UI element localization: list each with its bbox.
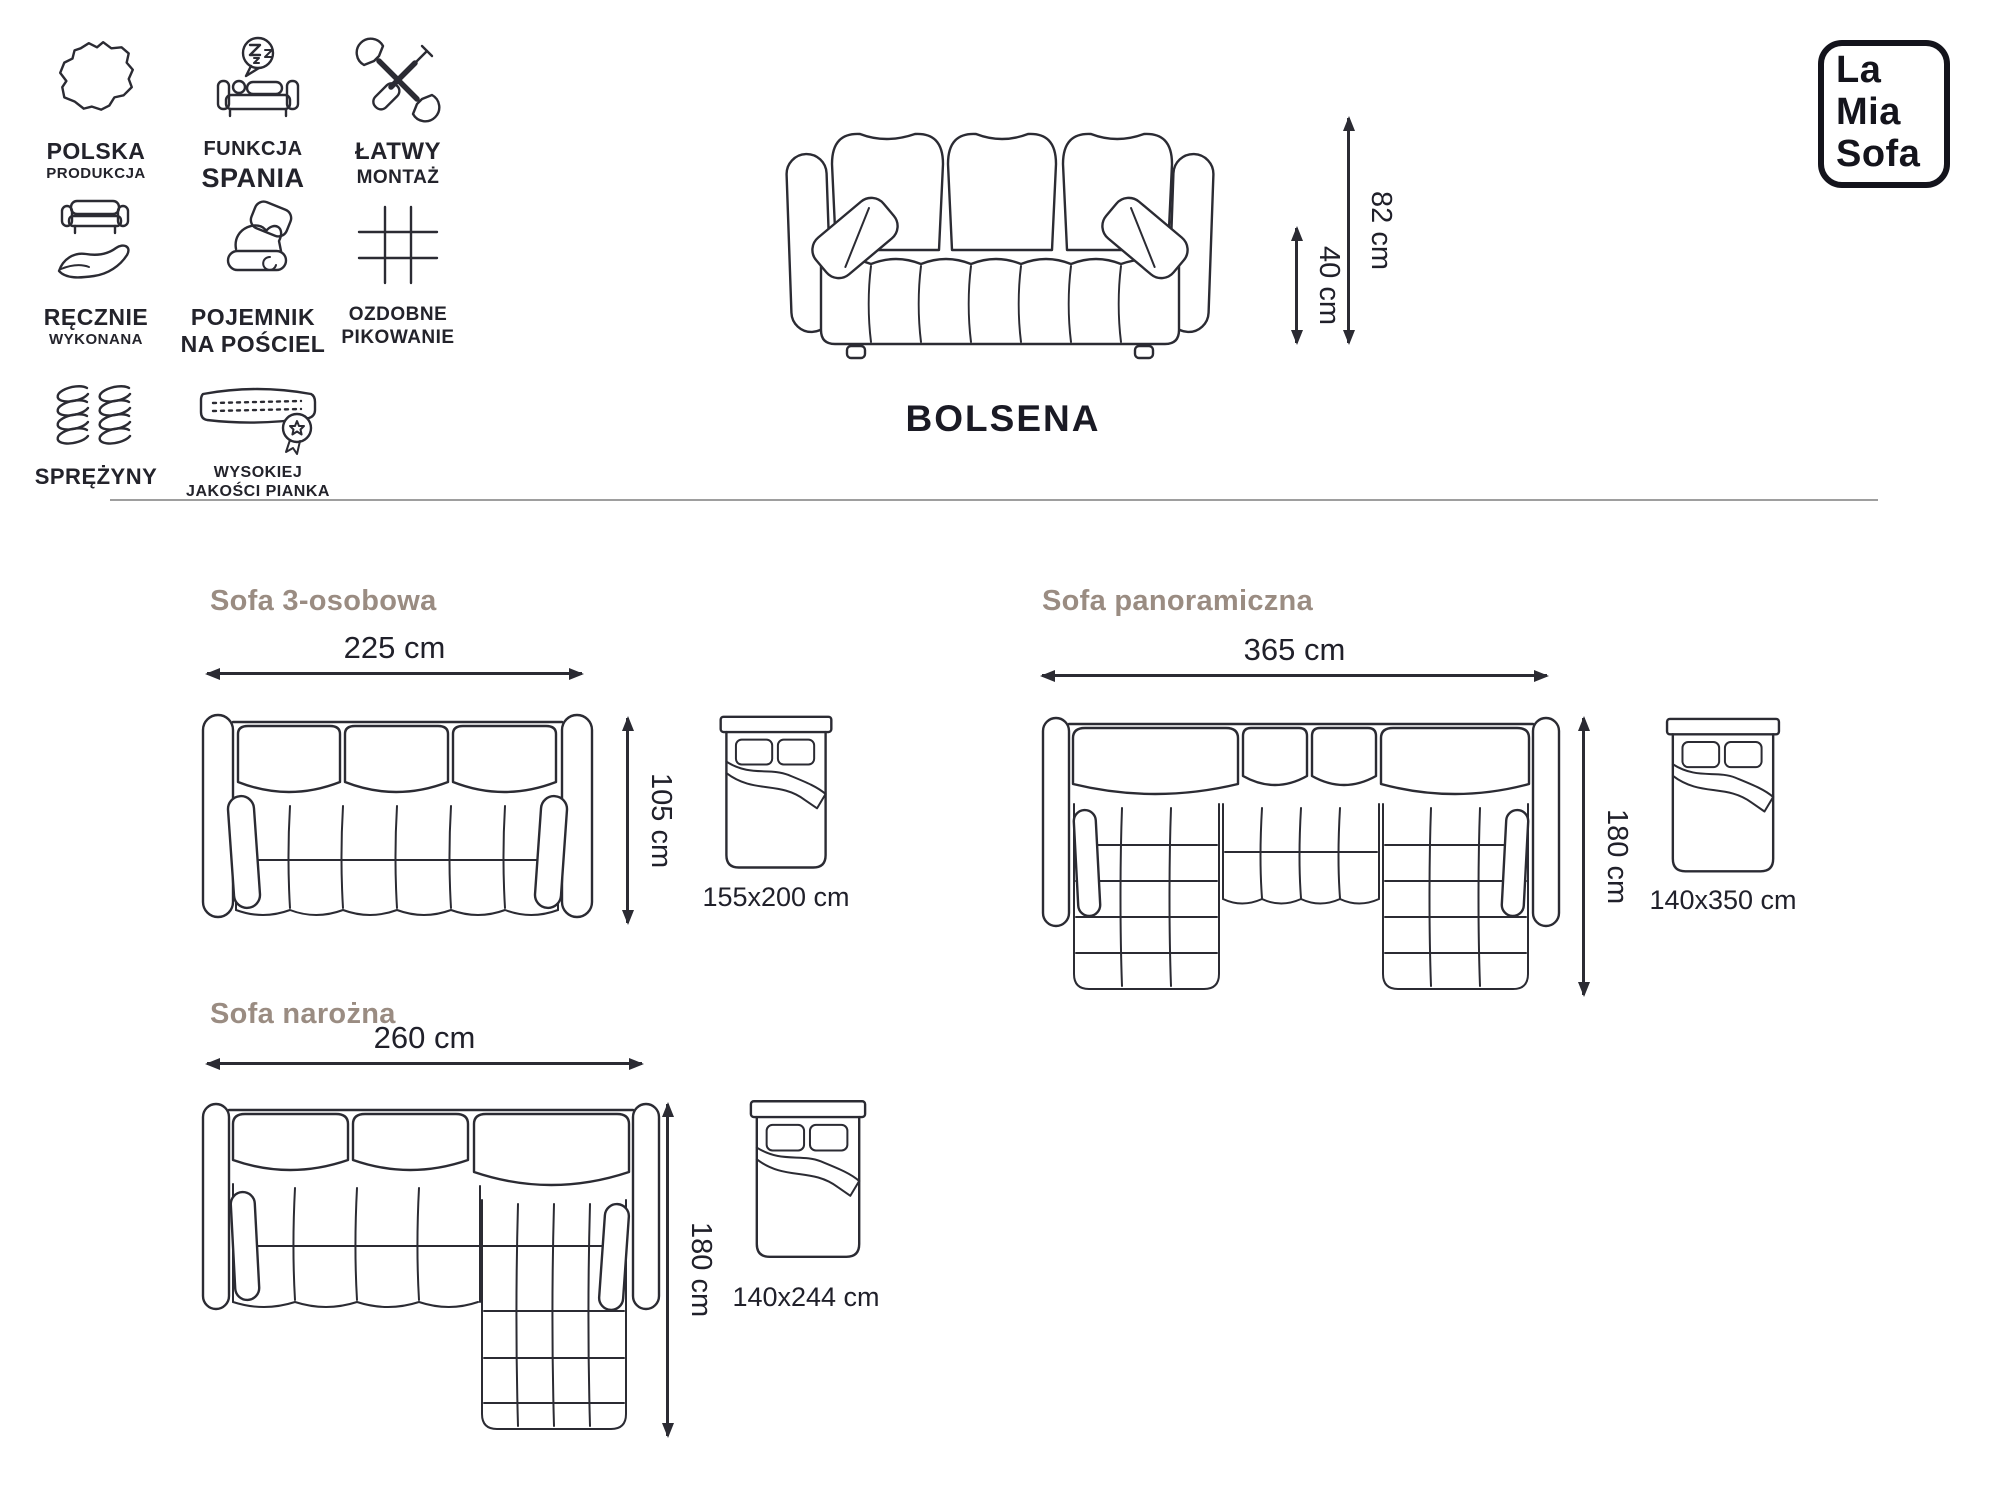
total-height-arrow <box>1347 118 1350 343</box>
feature-funkcja-spania: FUNKCJA SPANIA <box>173 30 333 196</box>
depth-arrow-3-osobowa <box>626 718 629 923</box>
logo-line: La <box>1836 50 1944 92</box>
seat-height-arrow <box>1295 228 1298 343</box>
feature-label: ŁATWY <box>355 138 441 166</box>
feature-sublabel: PRODUKCJA <box>46 164 146 184</box>
bedding-storage-icon <box>206 196 300 296</box>
feature-wysokiej-jakosci-pianka: WYSOKIEJ JAKOŚCI PIANKA <box>163 378 353 503</box>
logo-line: Mia <box>1836 92 1944 134</box>
feature-label: RĘCZNIE <box>44 304 148 330</box>
feature-sprezyny: SPRĘŻYNY <box>21 378 171 489</box>
depth-label-3-osobowa: 105 cm <box>644 718 677 923</box>
feature-recznie-wykonana: RĘCZNIE WYKONANA <box>21 196 171 350</box>
feature-sublabel: WYKONANA <box>49 330 143 350</box>
depth-arrow-narozna <box>666 1104 669 1436</box>
poland-map-icon <box>50 30 142 130</box>
depth-arrow-panoramiczna <box>1582 718 1585 995</box>
variant-title-panoramiczna: Sofa panoramiczna <box>1042 585 1313 618</box>
sofa-front-drawing <box>735 88 1265 373</box>
feature-label: WYSOKIEJ <box>214 464 302 482</box>
product-title: BOLSENA <box>850 398 1156 440</box>
variant-title-3-osobowa: Sofa 3-osobowa <box>210 585 437 618</box>
feature-latwy-montaz: ŁATWY MONTAŻ <box>328 30 468 190</box>
feature-label: SPRĘŻYNY <box>35 464 158 489</box>
sofa-top-view-narozna <box>200 1096 662 1440</box>
feature-polska-produkcja: POLSKA PRODUKCJA <box>21 30 171 184</box>
handmade-icon <box>49 196 143 296</box>
feature-label: POJEMNIK <box>191 304 315 330</box>
depth-label-narozna: 180 cm <box>684 1104 717 1436</box>
easy-assembly-tools-icon <box>355 30 441 130</box>
width-arrow-panoramiczna <box>1042 674 1547 677</box>
bed-size-label-panoramiczna: 140x350 cm <box>1623 885 1823 916</box>
feature-label: FUNKCJA <box>203 138 302 161</box>
bed-icon-narozna <box>744 1098 872 1266</box>
bed-size-label-narozna: 140x244 cm <box>706 1282 906 1313</box>
feature-label: OZDOBNE <box>349 304 448 326</box>
feature-ozdobne-pikowanie: OZDOBNE PIKOWANIE <box>328 196 468 351</box>
springs-icon <box>50 378 142 456</box>
feature-sublabel: SPANIA <box>201 161 304 196</box>
width-label-panoramiczna: 365 cm <box>1042 632 1547 668</box>
total-height-label: 82 cm <box>1364 128 1397 333</box>
feature-label: POLSKA <box>47 138 146 164</box>
seat-height-label: 40 cm <box>1312 228 1345 343</box>
foam-quality-icon <box>193 378 323 456</box>
sleep-function-icon <box>206 30 300 130</box>
bed-icon-panoramiczna <box>1660 716 1786 880</box>
width-label-3-osobowa: 225 cm <box>207 630 582 666</box>
bed-size-label-3-osobowa: 155x200 cm <box>676 882 876 913</box>
width-arrow-3-osobowa <box>207 672 582 675</box>
feature-pojemnik-na-posciel: POJEMNIK NA POŚCIEL <box>173 196 333 360</box>
depth-label-panoramiczna: 180 cm <box>1600 718 1633 995</box>
bed-icon-3-osobowa <box>714 712 838 878</box>
brand-logo: La Mia Sofa <box>1818 40 1950 188</box>
width-arrow-narozna <box>207 1062 642 1065</box>
width-label-narozna: 260 cm <box>207 1020 642 1056</box>
feature-sublabel: PIKOWANIE <box>341 326 454 351</box>
feature-sublabel: MONTAŻ <box>357 166 440 191</box>
sofa-top-view-3-osobowa <box>200 710 595 925</box>
quilting-grid-icon <box>354 196 442 296</box>
logo-line: Sofa <box>1836 134 1944 176</box>
feature-sublabel: NA POŚCIEL <box>181 330 326 360</box>
sofa-top-view-panoramiczna <box>1040 712 1562 995</box>
page: POLSKA PRODUKCJA FUNKCJA SPANIA <box>0 0 2000 1500</box>
divider <box>110 499 1878 501</box>
